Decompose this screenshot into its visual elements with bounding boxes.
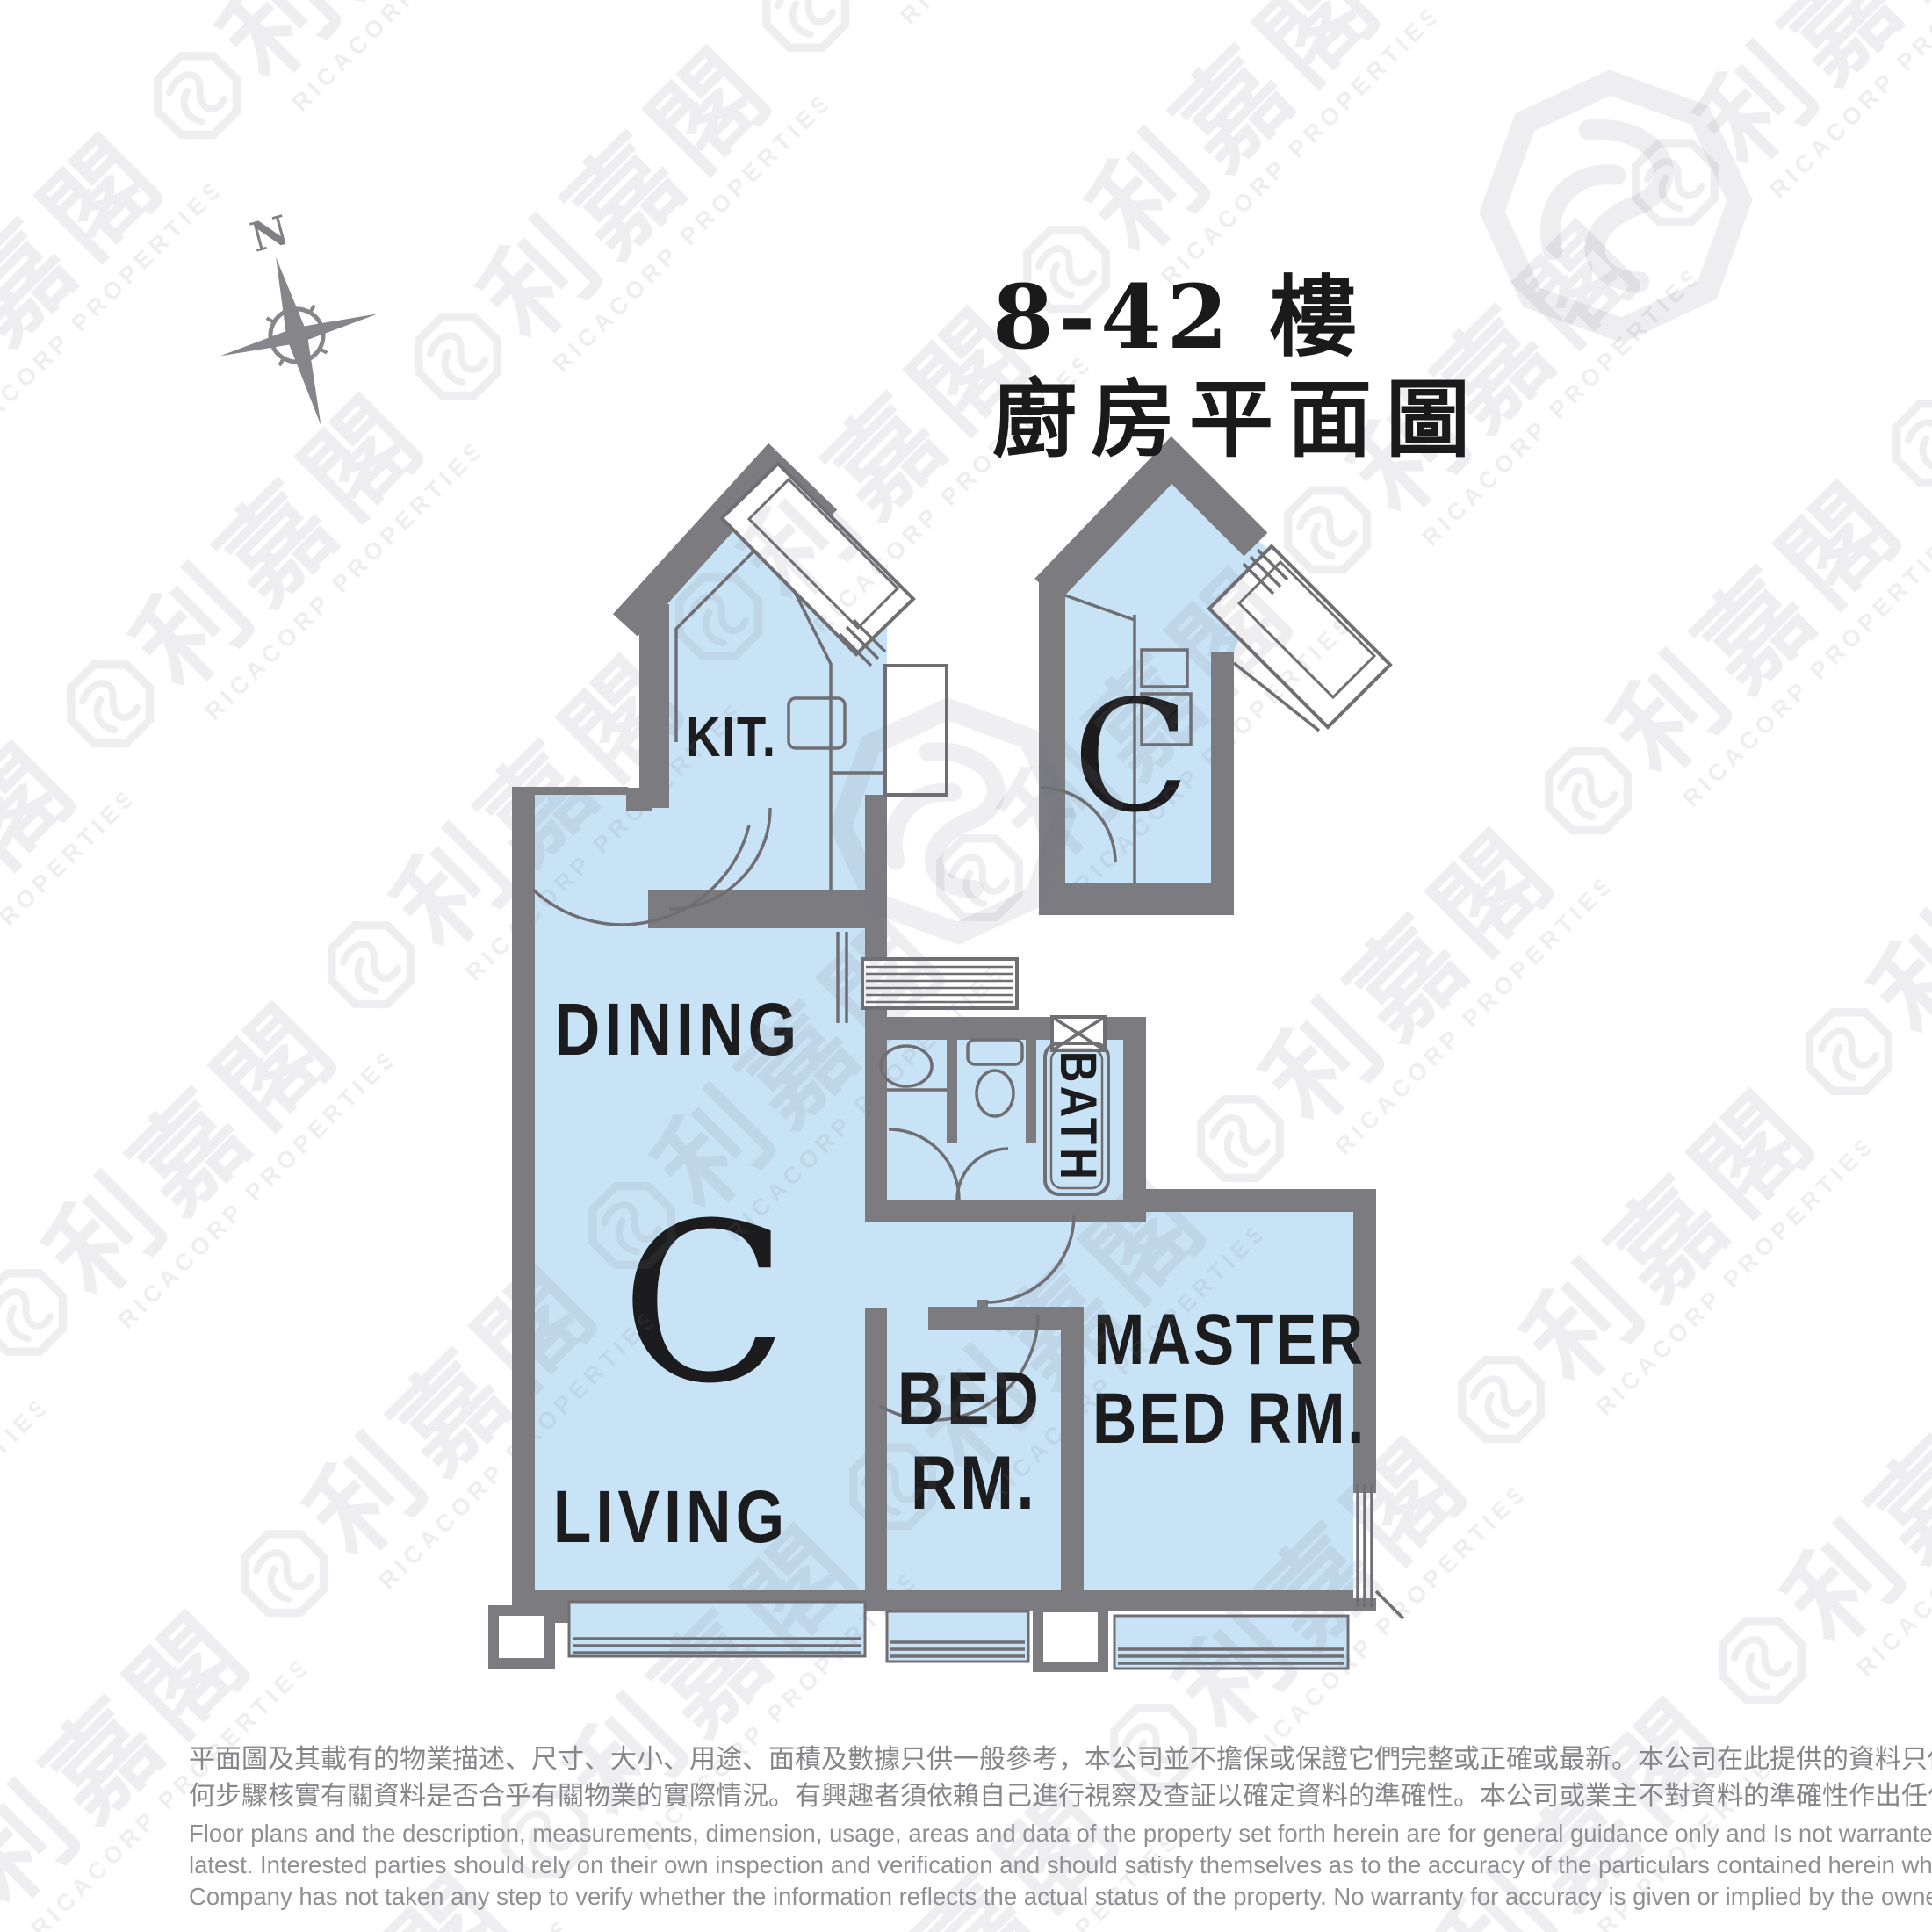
disclaimer-zh-line2: 何步驟核實有關資料是否合乎有關物業的實際情況。有興趣者須依賴自己進行視察及查証以…: [189, 1774, 1770, 1813]
disclaimer-en-line3: Company has not taken any step to verify…: [189, 1883, 1770, 1911]
plan-title-kitchen-plan: 廚房平面圖: [992, 351, 1484, 473]
disclaimer-en-line1: Floor plans and the description, measure…: [189, 1820, 1770, 1848]
disclaimer-en-line2: latest. Interested parties should rely o…: [189, 1851, 1770, 1879]
floor-plan-svg: 利嘉閣 RICACORP PROPERTIES: [0, 0, 1932, 1932]
floor-plan-page: 利嘉閣 RICACORP PROPERTIES: [0, 0, 1932, 1932]
disclaimer-zh-line1: 平面圖及其載有的物業描述、尺寸、大小、用途、面積及數據只供一般參考，本公司並不擔…: [189, 1737, 1770, 1776]
